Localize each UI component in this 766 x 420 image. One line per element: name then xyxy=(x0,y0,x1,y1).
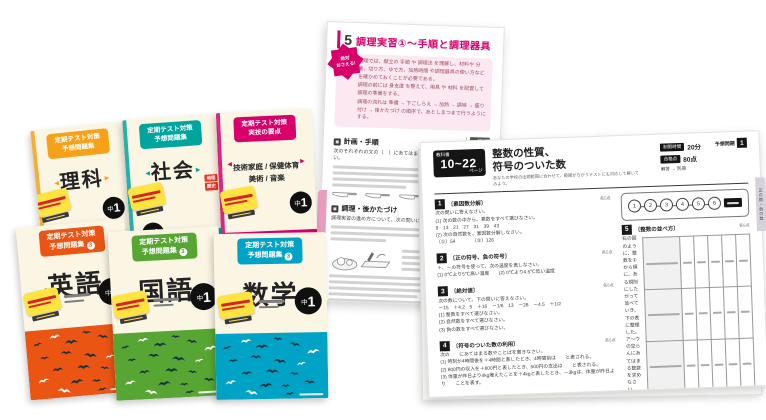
lesson-header: 5 調理実習①～手順と調理器具 xyxy=(337,30,494,53)
number-sequence-diagram: 123456 xyxy=(621,189,750,221)
cell-placeholder xyxy=(646,262,678,265)
problem-score: 各5点 xyxy=(603,283,614,289)
text-line-placeholder xyxy=(330,237,386,242)
bird-icon xyxy=(139,368,151,375)
bird-icon xyxy=(124,377,136,386)
bird-icon xyxy=(266,367,279,374)
table-cell xyxy=(643,237,682,290)
bird-icon xyxy=(92,378,101,384)
bird-icon xyxy=(281,383,290,388)
problem-text: 右の図のように、整数を①から順に、ある規則にしたがって並べていき、下の表に整理し… xyxy=(622,236,643,395)
series-subname: 予想問題集 xyxy=(247,252,282,260)
problem-number: 2 xyxy=(437,254,447,264)
table-row xyxy=(644,286,753,341)
bird-icon xyxy=(256,342,269,349)
bird-icon xyxy=(77,362,90,370)
bird-icon xyxy=(120,343,130,351)
sequence-node: 6 xyxy=(708,197,721,210)
bird-icon xyxy=(285,390,295,396)
bird-icon xyxy=(149,352,160,358)
table-row xyxy=(643,234,752,289)
problem-score: 各5点 xyxy=(602,250,613,256)
cell-placeholder xyxy=(711,260,720,262)
publisher-mark xyxy=(299,393,323,395)
bird-icon xyxy=(97,385,107,392)
problem-number: 4 xyxy=(440,341,450,351)
bird-icon xyxy=(40,354,50,360)
bird-icon xyxy=(203,375,214,382)
table-cell xyxy=(736,234,752,286)
grade-badge: 中1 xyxy=(102,196,126,220)
cell-placeholder xyxy=(687,365,696,367)
bird-icon xyxy=(165,366,178,373)
text-line-placeholder xyxy=(328,292,417,298)
series-subname: 予想問題集 xyxy=(142,248,177,257)
bird-icon xyxy=(144,387,158,396)
section-title: 調理・後かたづけ xyxy=(341,204,397,216)
problem-heading: 〔整数の並べ方〕 xyxy=(635,224,679,234)
star-badge: 絶対 おさえる! xyxy=(327,44,363,80)
problem-3: 3〔絶対値〕各5点次の数について、下の問いに答えなさい。－15 ＋4.2 5 ＋… xyxy=(438,281,616,335)
bird-icon xyxy=(222,343,232,350)
cell-placeholder xyxy=(650,365,682,368)
predicted-problems-label: 予想問題 xyxy=(715,140,735,148)
bird-icon xyxy=(83,350,97,358)
problem-5: 5〔整数の並べ方〕各5点右の図のように、整数を①から順に、ある規則にしたがって並… xyxy=(622,220,756,394)
cell-placeholder xyxy=(725,260,734,262)
sample-page-math: 正の数・負の数 教科書 10~22 ページ 整数の性質、 符号のついた数 あなた… xyxy=(420,130,766,398)
promo-badge xyxy=(23,286,64,322)
tag-geography: 地理 xyxy=(204,174,217,182)
pass-score-value: 80点 xyxy=(683,153,697,163)
cell-placeholder xyxy=(729,363,738,365)
bird-icon xyxy=(184,388,194,395)
bird-icon xyxy=(171,333,180,338)
knife-icon xyxy=(332,189,360,200)
series-header: 定期テスト対策 予想問題集 xyxy=(46,128,110,159)
sequence-goal-box xyxy=(724,198,742,208)
time-limit-value: 20分 xyxy=(687,141,701,151)
bird-icon xyxy=(188,368,197,374)
cell-placeholder xyxy=(713,312,722,314)
product-composite-image: 5 調理実習①～手順と調理器具 絶対 おさえる! 調理では、献立の 手順 や 調… xyxy=(0,0,766,420)
page-unit: ページ xyxy=(469,168,483,174)
worksheet-corner-mark: 予想問題 1 xyxy=(715,138,747,149)
key-points-box: 絶対 おさえる! 調理では、献立の 手順 や 調理法 を理解し、材料や 分量、切… xyxy=(334,53,492,131)
bird-icon xyxy=(37,376,49,385)
section-icon xyxy=(334,138,341,145)
problem-score: 各5点 xyxy=(600,195,611,201)
bird-icon xyxy=(245,387,259,397)
cell-placeholder xyxy=(715,364,724,366)
cell-placeholder xyxy=(648,314,680,317)
bird-icon xyxy=(250,353,261,360)
table-cell xyxy=(644,289,683,342)
problem-number: 5 xyxy=(622,225,632,235)
bird-icon xyxy=(296,359,306,366)
bird-icon xyxy=(97,332,109,339)
problem-body-with-table: 右の図のように、整数を①から順に、ある規則にしたがって並べていき、下の表に整理し… xyxy=(622,232,755,394)
pass-score-label: 合格点 xyxy=(661,155,681,164)
cell-placeholder xyxy=(741,311,750,313)
series-header: 定期テスト対策 予想問題集 xyxy=(139,120,202,149)
problem-number: 3 xyxy=(438,286,448,296)
problem-number: 1 xyxy=(435,199,445,209)
bird-icon xyxy=(82,329,91,334)
sequence-node: 3 xyxy=(660,199,673,212)
sequence-table xyxy=(642,234,755,394)
volume-number: 3 xyxy=(86,242,95,251)
key-point-line: 調理の流れは 準備 → 下ごしらえ → 加熱 → 調味 → 盛り付け → 後かた… xyxy=(356,99,487,127)
problem-4: 4〔符号のついた数の利用〕各5点次の にあてはまる数やことばを書きなさい。(1)… xyxy=(440,335,618,389)
bird-icon xyxy=(186,337,198,345)
section-icon xyxy=(331,205,338,212)
key-point-line: 調理では、献立の 手順 や 調理法 を理解し、材料や 分量、切り方、ゆで方、加熱… xyxy=(358,58,489,86)
bird-icon xyxy=(52,365,64,373)
bird-icon xyxy=(157,378,171,387)
series-header: 定期テスト対策 予想問題集3 xyxy=(38,225,105,257)
bird-icon xyxy=(225,377,237,386)
bird-icon xyxy=(306,346,320,355)
promo-badge xyxy=(219,185,259,220)
bird-icon xyxy=(304,378,316,385)
problem-heading: 〔絶対値〕 xyxy=(451,286,479,295)
text-line-placeholder xyxy=(328,304,379,306)
series-subname: 実技の要点 xyxy=(242,127,288,138)
problem-heading: 〔符号のついた数の利用〕 xyxy=(453,339,519,349)
book-cover-math: 定期テスト対策 予想問題集3 ◂数学▸ 中1 xyxy=(214,232,329,400)
cell-placeholder xyxy=(685,313,694,315)
cover-illustration xyxy=(215,332,328,400)
series-header: 定期テスト対策 予想問題集3 xyxy=(131,232,197,262)
series-header: 定期テスト対策 実技の要点 xyxy=(233,115,296,143)
bird-icon xyxy=(137,335,149,343)
bird-icon xyxy=(240,369,252,376)
bird-icon xyxy=(273,356,287,365)
series-subname: 予想問題集 xyxy=(49,241,84,251)
volume-number: 3 xyxy=(179,248,187,256)
bird-icon xyxy=(194,356,204,363)
worksheet-number: 1 xyxy=(737,138,747,148)
sequence-node: 5 xyxy=(692,198,705,211)
star-badge-line2: おさえる! xyxy=(336,60,356,68)
bird-icon xyxy=(153,340,166,348)
book-title: ◂技術家庭 / 保健体育▸ 美術 / 音楽 xyxy=(218,153,315,187)
promo-badge xyxy=(127,182,167,218)
problem-score: 各5点 xyxy=(605,337,616,343)
sequence-node: 4 xyxy=(676,198,689,211)
problem-line: ア～ウの空らんにあてはまる整数を求めなさい。 xyxy=(626,336,643,394)
series-subname: 予想問題集 xyxy=(148,133,194,146)
bird-icon xyxy=(258,380,272,389)
answer-note: 解答 → 別冊 xyxy=(661,165,702,172)
cell-placeholder xyxy=(727,312,736,314)
series-header: 定期テスト対策 予想問題集3 xyxy=(237,237,302,265)
bird-icon xyxy=(180,381,189,386)
cover-caption xyxy=(259,297,289,312)
textbook-page-range: 教科書 10~22 ページ xyxy=(433,149,486,178)
bird-icon xyxy=(290,370,300,376)
bird-icon xyxy=(127,357,136,363)
bird-icon xyxy=(70,376,84,386)
cell-placeholder xyxy=(743,363,752,365)
table-cell xyxy=(739,338,755,390)
promo-badge xyxy=(111,290,151,325)
book-cover-japanese: 定期テスト対策 予想問題集3 ◂国語▸ 中1 xyxy=(108,226,228,401)
worksheet-header: 教科書 10~22 ページ 整数の性質、 符号のついた数 あなたの学校の出題範囲… xyxy=(433,140,748,195)
bird-icon xyxy=(273,335,282,341)
bird-icon xyxy=(289,339,301,347)
bird-icon xyxy=(60,349,71,355)
sequence-node: 2 xyxy=(644,199,657,212)
section-title: 計画・手順 xyxy=(344,137,379,148)
cell-placeholder xyxy=(699,313,708,315)
table-cell xyxy=(737,286,753,338)
cell-placeholder xyxy=(697,261,706,263)
bird-icon xyxy=(58,385,72,394)
bird-icon xyxy=(240,337,252,345)
tag-history: 歴史 xyxy=(205,182,218,190)
cell-placeholder xyxy=(739,259,748,261)
cell-placeholder xyxy=(683,261,692,263)
problem-score: 各5点 xyxy=(739,222,750,228)
problem-heading: 〔正の符号、負の符号〕 xyxy=(450,252,511,262)
promo-badge xyxy=(217,291,256,325)
table-row xyxy=(646,338,755,393)
problem-1: 1〔素因数分解〕各5点次の問いに答えなさい。(1) 次の数の中から、素数をすべて… xyxy=(435,193,613,247)
problem-heading: 〔素因数分解〕 xyxy=(448,199,487,208)
grade-badge: 中1 xyxy=(289,191,312,214)
cover-caption xyxy=(63,290,94,307)
bird-icon xyxy=(172,354,186,363)
worksheet-meta: 制限時間 20分 合格点 80点 解答 → 別冊 xyxy=(660,141,702,172)
problem-line: 右の図のように、整数を①から順に、ある規則にしたがって並べていき、下の表に整理し… xyxy=(622,236,641,337)
sequence-node: 1 xyxy=(628,200,641,213)
bird-icon xyxy=(32,340,42,348)
bird-icon xyxy=(49,332,61,340)
cover-illustration xyxy=(113,328,227,401)
volume-number: 3 xyxy=(284,253,292,261)
table-cell xyxy=(646,340,685,393)
worksheet-note: あなたの学校の出題範囲に合わせて、範囲がちがうテストにも対応して解いてみよう。 xyxy=(493,170,643,187)
goal-label-placeholder xyxy=(727,202,739,204)
bird-icon xyxy=(229,357,238,363)
bird-icon xyxy=(65,337,79,345)
cell-placeholder xyxy=(701,364,710,366)
lesson-title: 調理実習①～手順と調理器具 xyxy=(356,33,491,53)
problem-2: 2〔正の符号、負の符号〕各5点＋、－の符号を使って、次の温度を表しなさい。(1)… xyxy=(437,248,614,280)
bird-icon xyxy=(100,365,109,371)
knife-icon xyxy=(365,190,393,201)
cover-caption xyxy=(153,294,184,310)
subject-tags: 地理 歴史 xyxy=(204,174,218,191)
text-line-placeholder xyxy=(332,183,406,189)
time-limit-label: 制限時間 xyxy=(660,143,684,152)
